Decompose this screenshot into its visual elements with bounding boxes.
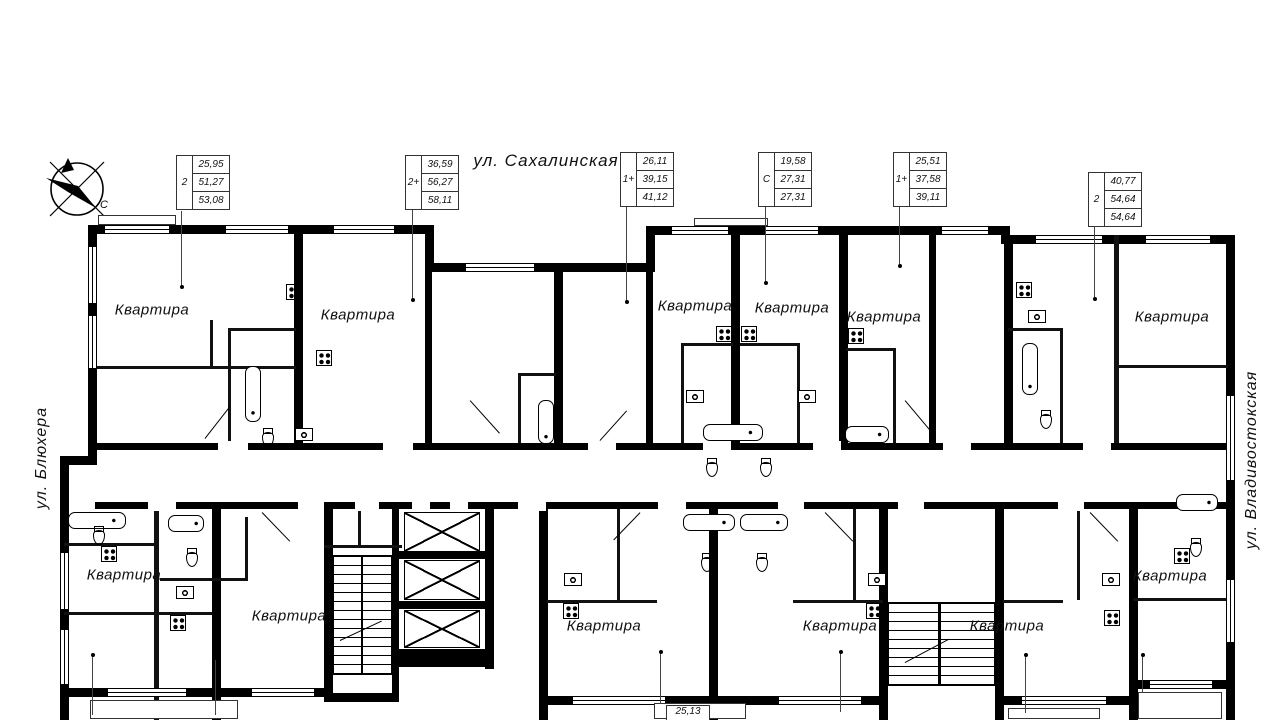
balcony <box>694 218 768 226</box>
area-values: 40,77 54,64 54,64 <box>1105 173 1141 226</box>
door-opening <box>813 441 841 452</box>
area-value: 54,64 <box>1105 209 1141 226</box>
area-value: 37,58 <box>910 171 946 189</box>
window <box>942 226 988 235</box>
window <box>1226 396 1235 480</box>
sink-icon <box>564 573 582 586</box>
balcony <box>1008 708 1100 719</box>
stove-icon <box>1174 548 1190 564</box>
window <box>105 225 169 234</box>
door-opening <box>943 441 971 452</box>
wall <box>681 343 733 346</box>
area-value: 26,11 <box>637 153 673 171</box>
door-opening <box>383 441 413 452</box>
wall <box>324 693 399 702</box>
wall <box>1060 328 1063 443</box>
sink-icon <box>798 390 816 403</box>
door-opening <box>703 441 731 452</box>
window <box>466 263 534 272</box>
door-opening <box>1083 441 1111 452</box>
wall <box>1119 365 1228 368</box>
window <box>573 696 665 705</box>
door-leaf <box>262 512 291 542</box>
area-value: 54,64 <box>1105 191 1141 209</box>
wall <box>846 348 895 351</box>
door-opening <box>778 500 804 511</box>
wall <box>518 373 521 443</box>
wall <box>1003 600 1063 603</box>
leader-line <box>1094 226 1095 299</box>
door-opening <box>412 500 430 511</box>
area-value: 56,27 <box>422 174 458 192</box>
elevator-shaft <box>404 560 480 600</box>
area-table: 2+ 36,59 56,27 58,11 <box>405 155 459 210</box>
bathtub-icon <box>168 515 204 532</box>
door-opening <box>588 441 616 452</box>
area-value: 53,08 <box>193 192 229 209</box>
street-label-right: ул. Владивостокская <box>1243 371 1261 549</box>
wall <box>518 373 556 376</box>
stove-icon <box>101 546 117 562</box>
stove-icon <box>170 615 186 631</box>
sink-icon <box>1028 310 1046 323</box>
wall <box>839 226 848 443</box>
stove-icon <box>716 326 732 342</box>
area-value: 41,12 <box>637 189 673 206</box>
door-leaf <box>1090 512 1119 542</box>
wall <box>709 509 718 720</box>
door-leaf <box>470 400 500 433</box>
leader-line <box>92 655 93 715</box>
area-value: 19,58 <box>775 153 811 171</box>
street-label-top: ул. Сахалинская <box>473 151 618 171</box>
door-opening <box>355 500 379 511</box>
area-table: С 19,58 27,31 27,31 <box>758 152 812 207</box>
door-opening <box>298 500 324 511</box>
balcony <box>1138 692 1222 719</box>
sink-icon <box>176 586 194 599</box>
apartment-label: Квартира <box>115 302 190 319</box>
toilet-icon <box>1040 414 1052 429</box>
window <box>766 226 818 235</box>
area-table: 1+ 26,11 39,15 41,12 <box>620 152 674 207</box>
area-value: 25,51 <box>910 153 946 171</box>
apartment-label: Квартира <box>321 307 396 324</box>
wall <box>97 366 296 369</box>
area-table: 1+ 25,51 37,58 39,11 <box>893 152 947 207</box>
wall <box>358 509 361 545</box>
apartment-label: Квартира <box>755 300 830 317</box>
wall <box>1077 509 1080 600</box>
wall <box>228 328 231 443</box>
area-table: 2 25,95 51,27 53,08 <box>176 155 230 210</box>
sink-icon <box>686 390 704 403</box>
door-opening <box>218 441 248 452</box>
wall <box>245 517 248 580</box>
leader-line <box>626 206 627 302</box>
wall <box>425 272 432 443</box>
toilet-icon <box>756 557 768 572</box>
elevator-shaft <box>404 512 480 552</box>
door-opening <box>450 500 468 511</box>
bathtub-icon <box>245 366 261 422</box>
window <box>334 225 394 234</box>
area-values: 25,95 51,27 53,08 <box>193 156 229 209</box>
window <box>1150 680 1212 689</box>
wall <box>1133 598 1228 601</box>
wall <box>646 272 653 443</box>
door-opening <box>518 500 546 511</box>
leader-line <box>181 211 182 287</box>
bathtub-icon <box>740 514 788 531</box>
apartment-label: Квартира <box>87 567 162 584</box>
bathtub-icon <box>1176 494 1218 511</box>
toilet-icon <box>760 462 772 477</box>
window <box>252 688 314 697</box>
balcony <box>98 215 176 225</box>
apartment-label: Квартира <box>803 618 878 635</box>
wall <box>392 658 494 667</box>
window <box>779 696 861 705</box>
bathtub-icon <box>703 424 763 441</box>
window <box>1036 235 1102 244</box>
toilet-icon <box>1190 542 1202 557</box>
wall <box>554 263 563 443</box>
wall <box>397 649 493 658</box>
wall <box>64 612 212 615</box>
leader-line <box>215 658 216 715</box>
toilet-icon <box>186 552 198 567</box>
area-value: 27,31 <box>775 189 811 206</box>
wall <box>1004 244 1013 443</box>
area-value: 27,31 <box>775 171 811 189</box>
apartment-type: 1+ <box>621 153 637 206</box>
leader-line <box>765 206 766 283</box>
window <box>1226 580 1235 642</box>
door-leaf <box>205 407 231 439</box>
apartment-type: С <box>759 153 775 206</box>
stove-icon <box>1104 610 1120 626</box>
stove-icon <box>286 284 302 300</box>
wall <box>210 320 213 368</box>
wall <box>853 509 856 600</box>
window <box>672 226 728 235</box>
wall <box>324 545 402 548</box>
area-values: 36,59 56,27 58,11 <box>422 156 458 209</box>
apartment-label: Квартира <box>970 618 1045 635</box>
wall <box>893 348 896 443</box>
leader-line <box>1025 655 1026 713</box>
area-values: 26,11 39,15 41,12 <box>637 153 673 206</box>
apartment-type: 2+ <box>406 156 422 209</box>
wall <box>681 343 684 443</box>
window <box>60 553 69 609</box>
area-value: 51,27 <box>193 174 229 192</box>
apartment-label: Квартира <box>567 618 642 635</box>
area-values: 19,58 27,31 27,31 <box>775 153 811 206</box>
bathtub-icon <box>845 426 889 443</box>
leader-line <box>412 209 413 300</box>
area-values: 25,51 37,58 39,11 <box>910 153 946 206</box>
area-value: 39,15 <box>637 171 673 189</box>
wall <box>485 509 494 669</box>
elevator-shaft <box>404 610 480 648</box>
wall <box>397 601 493 609</box>
apartment-type: 2 <box>1089 173 1105 226</box>
wall <box>294 225 303 443</box>
door-opening <box>148 500 176 511</box>
apartment-type: 2 <box>177 156 193 209</box>
street-label-left: ул. Блюхера <box>33 407 51 509</box>
toilet-icon <box>706 462 718 477</box>
stove-icon <box>848 328 864 344</box>
leader-line <box>840 652 841 712</box>
window <box>1146 235 1210 244</box>
apartment-label: Квартира <box>1135 309 1210 326</box>
bathtub-icon <box>1022 343 1038 395</box>
area-value: 58,11 <box>422 192 458 209</box>
wall <box>228 328 296 331</box>
stove-icon <box>316 350 332 366</box>
wall <box>539 509 548 720</box>
bathtub-icon <box>683 514 735 531</box>
wall <box>929 226 936 443</box>
door-leaf <box>600 410 628 441</box>
window <box>108 688 186 697</box>
wall <box>731 226 740 443</box>
wall <box>1114 235 1119 443</box>
window <box>88 316 97 368</box>
door-opening <box>1058 500 1084 511</box>
bathtub-icon <box>538 400 554 444</box>
apartment-label: Квартира <box>658 298 733 315</box>
wall <box>428 263 654 272</box>
wall <box>740 343 799 346</box>
apartment-label: Квартира <box>1133 568 1208 585</box>
wall <box>995 509 1004 720</box>
door-opening <box>898 500 924 511</box>
sink-icon <box>1102 573 1120 586</box>
floor-plan: ул. Сахалинская ул. Блюхера ул. Владивос… <box>0 0 1280 720</box>
stair-stringer <box>361 555 363 675</box>
apartment-type: 1+ <box>894 153 910 206</box>
window <box>88 247 97 303</box>
area-value: 40,77 <box>1105 173 1141 191</box>
area-table-partial: 25,13 <box>666 705 710 720</box>
leader-line <box>660 652 661 704</box>
area-value: 25,95 <box>193 156 229 174</box>
wall <box>160 578 248 581</box>
door-leaf <box>825 512 854 542</box>
wall <box>1008 328 1062 331</box>
door-opening <box>658 500 686 511</box>
sink-icon <box>295 428 313 441</box>
area-value: 36,59 <box>422 156 458 174</box>
leader-line <box>1142 655 1143 693</box>
sink-icon <box>868 573 886 586</box>
window <box>1022 696 1106 705</box>
wall <box>324 509 333 699</box>
stove-icon <box>741 326 757 342</box>
apartment-label: Квартира <box>252 608 327 625</box>
leader-line <box>899 206 900 266</box>
window <box>226 225 288 234</box>
window <box>60 630 69 684</box>
staircase <box>888 602 995 686</box>
compass-north-label: С <box>100 199 108 211</box>
area-table: 2 40,77 54,64 54,64 <box>1088 172 1142 227</box>
wall <box>397 551 493 559</box>
area-value: 39,11 <box>910 189 946 206</box>
apartment-label: Квартира <box>847 309 922 326</box>
wall <box>617 509 620 600</box>
stove-icon <box>1016 282 1032 298</box>
